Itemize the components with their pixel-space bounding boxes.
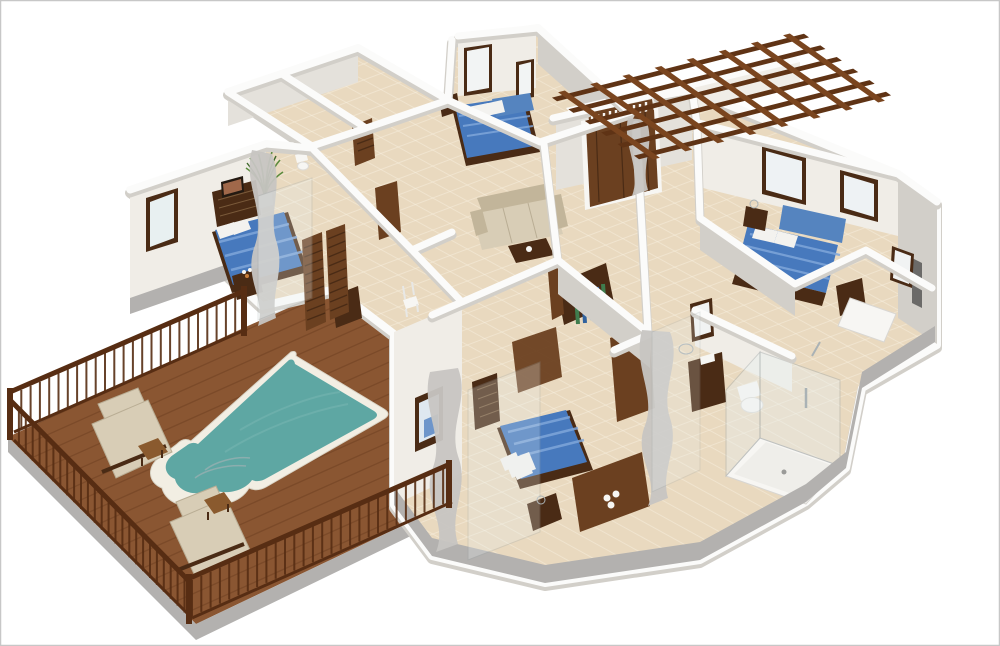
glass-pane-bath [652,312,700,492]
post-north [241,286,247,336]
shower-drain [782,470,787,475]
cup-3 [608,502,615,509]
cup-1 [604,495,611,502]
glass-pane-left [258,178,312,320]
screenshot-root: 3D cutaway floor plan render of a single… [0,0,1000,646]
coffee-cup [526,246,532,252]
post-south [186,574,192,624]
glass-pane-bc [468,362,540,560]
mirror-tc-2 [519,62,531,96]
floor-plan-render: 3D cutaway floor plan render of a single… [0,0,1000,646]
post-east [446,460,452,508]
cup-2 [613,491,620,498]
post-west [7,388,13,440]
window-left [150,193,174,247]
mirror-tc-1 [467,47,489,92]
